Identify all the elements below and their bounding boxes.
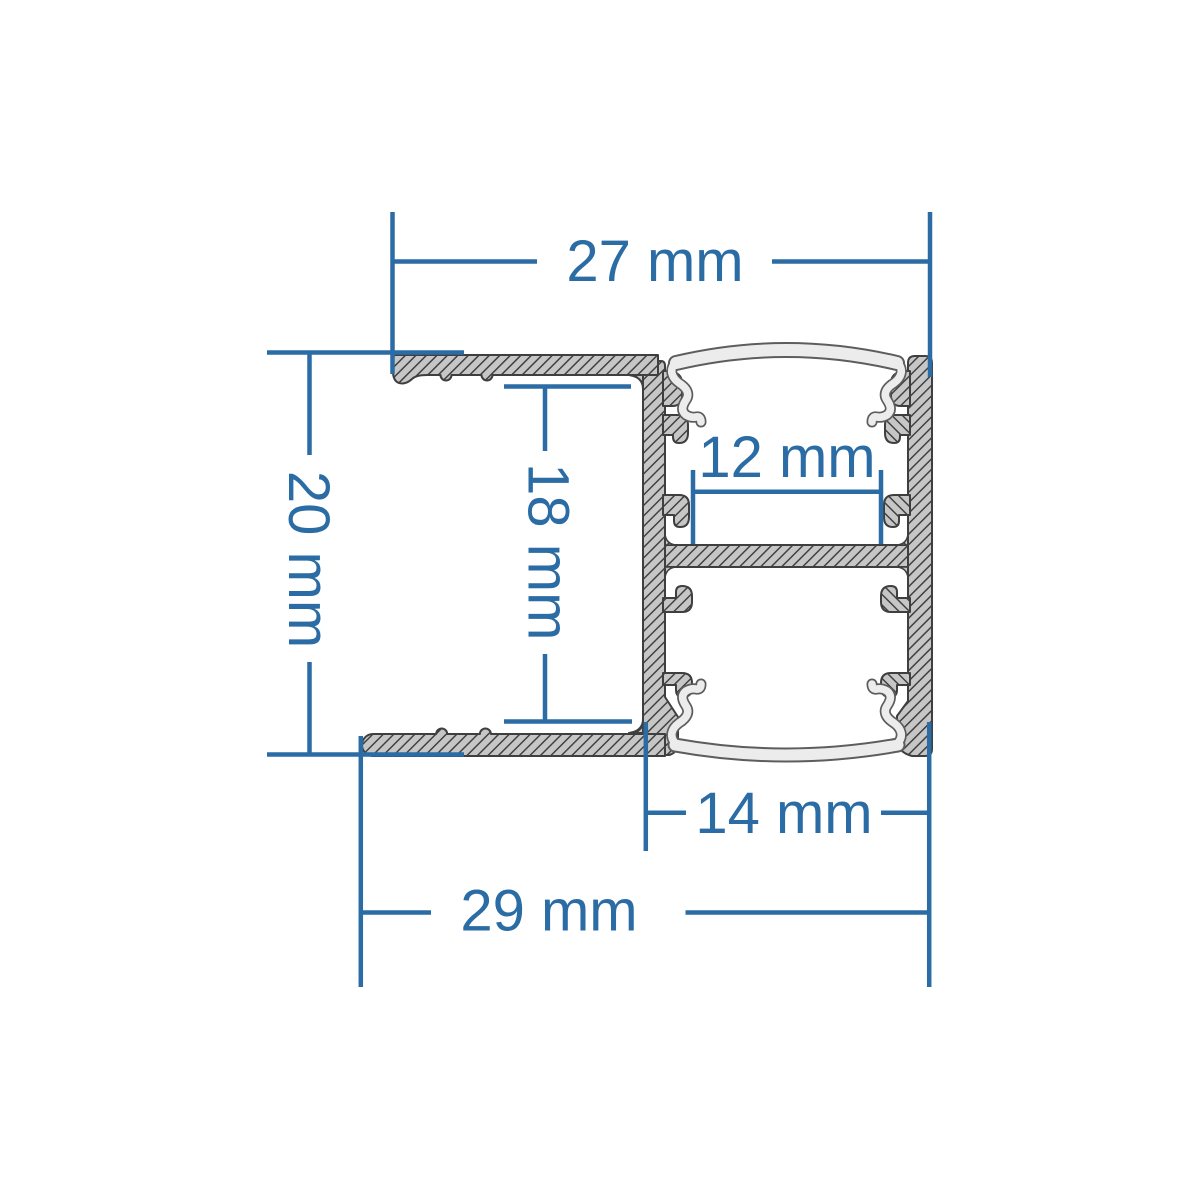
svg-text:14 mm: 14 mm (695, 781, 872, 846)
svg-text:12 mm: 12 mm (698, 425, 875, 490)
svg-text:20 mm: 20 mm (276, 471, 341, 648)
svg-text:29 mm: 29 mm (460, 879, 637, 944)
svg-text:18 mm: 18 mm (516, 463, 581, 640)
svg-text:27 mm: 27 mm (566, 229, 743, 294)
